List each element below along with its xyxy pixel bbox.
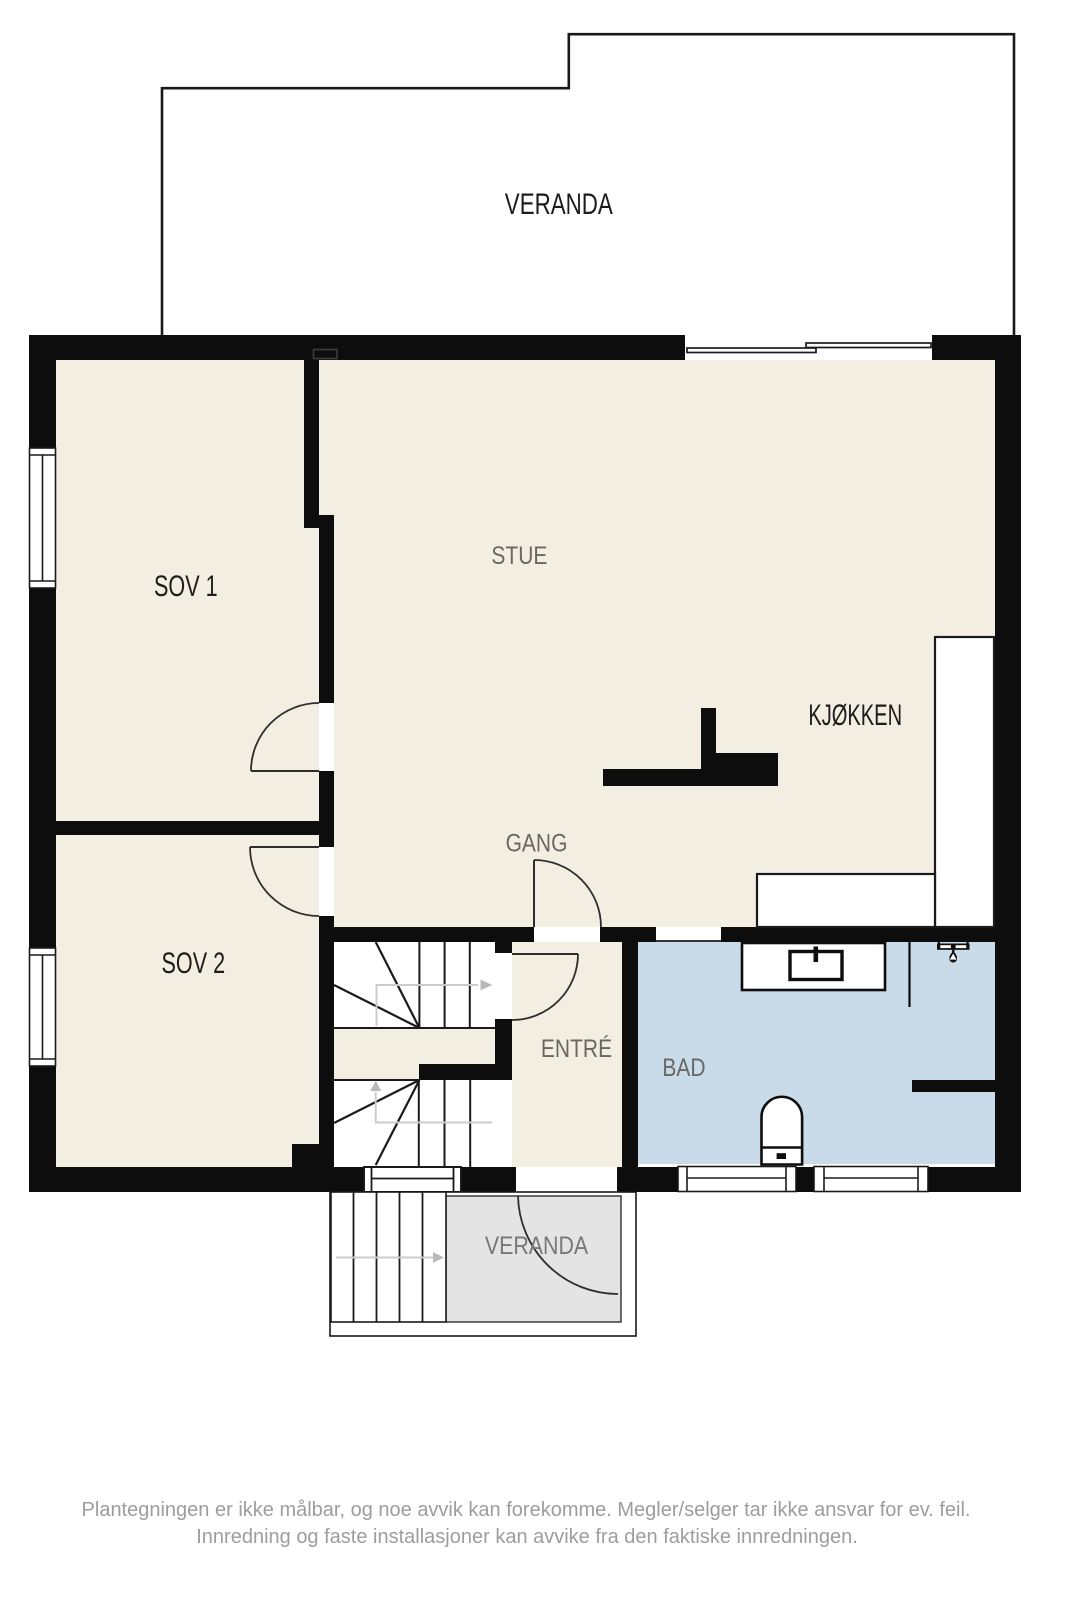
svg-text:SOV 1: SOV 1 [154,568,218,602]
svg-text:BAD: BAD [662,1053,705,1081]
svg-text:KJØKKEN: KJØKKEN [808,699,902,732]
svg-text:VERANDA: VERANDA [485,1231,589,1259]
svg-text:VERANDA: VERANDA [505,187,613,221]
svg-text:GANG: GANG [506,829,568,857]
svg-text:Innredning og faste installasj: Innredning og faste installasjoner kan a… [196,1526,858,1548]
svg-text:STUE: STUE [491,541,547,569]
svg-text:SOV 2: SOV 2 [161,945,225,979]
svg-text:Plantegningen er ikke målbar,: Plantegningen er ikke målbar, og noe avv… [82,1499,971,1521]
svg-text:ENTRÉ: ENTRÉ [541,1034,612,1062]
